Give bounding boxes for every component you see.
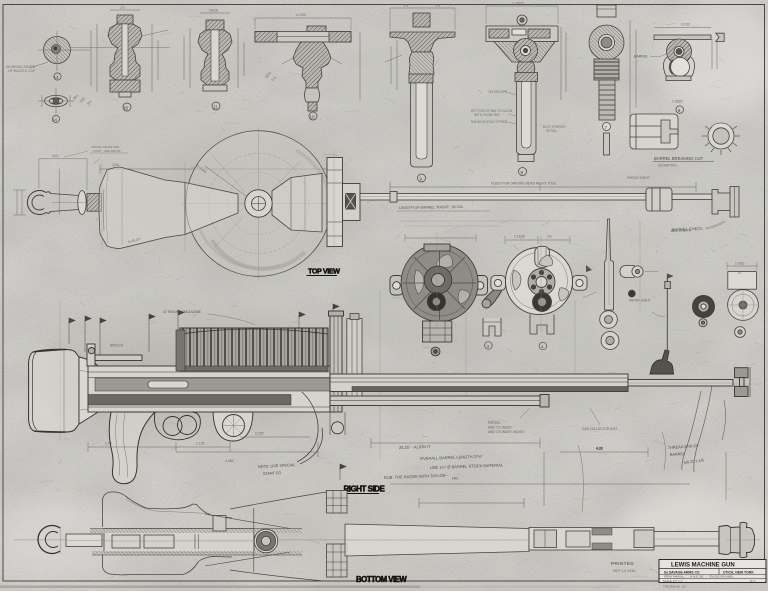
svg-text:1¾: 1¾ (547, 235, 552, 239)
svg-text:11: 11 (213, 105, 218, 110)
svg-text:1 15/32: 1 15/32 (512, 2, 524, 6)
svg-text:BARREL: BARREL (634, 55, 648, 59)
svg-text:14: 14 (52, 118, 58, 123)
svg-text:10: 10 (310, 115, 316, 120)
svg-text:6: 6 (678, 108, 681, 113)
svg-text:ISOMETRIC: ISOMETRIC (658, 164, 677, 168)
svg-text:10⅞: 10⅞ (52, 154, 59, 158)
svg-text:TELESCOPE: TELESCOPE (488, 90, 507, 94)
svg-text:PRINTED: PRINTED (611, 561, 634, 566)
svg-text:BREECH: BREECH (110, 344, 124, 348)
svg-text:HO: HO (452, 476, 458, 481)
svg-text:9: 9 (420, 177, 423, 182)
svg-text:WITH GUIDE RIB: WITH GUIDE RIB (474, 113, 499, 117)
svg-text:1 9/16: 1 9/16 (735, 262, 745, 266)
svg-text:2.225: 2.225 (255, 432, 264, 436)
svg-text:AND CYLINDER VALVES: AND CYLINDER VALVES (488, 430, 525, 434)
svg-text:UTICA, NEW YORK: UTICA, NEW YORK (723, 570, 754, 574)
svg-text:7: 7 (605, 125, 608, 130)
svg-text:8: 8 (521, 170, 524, 175)
svg-text:3.102: 3.102 (681, 23, 690, 27)
svg-text:TOP VIEW: TOP VIEW (308, 267, 340, 276)
svg-text:DETAIL: DETAIL (546, 129, 557, 133)
svg-text:PISTON -: PISTON - (488, 421, 502, 425)
svg-text:RADIO NOZZLE STRIKE: RADIO NOZZLE STRIKE (471, 120, 507, 124)
svg-text:4 1/32: 4 1/32 (296, 13, 306, 17)
svg-text:FROM "MANUAL..." · 14 AUG 362: FROM "MANUAL..." · 14 AUG 362 · / · TRAC… (664, 575, 734, 579)
svg-text:TRACING No. 117: TRACING No. 117 (663, 585, 686, 589)
svg-text:FLEET FOR DRIVING HEAD RIGHT T: FLEET FOR DRIVING HEAD RIGHT TOOL (491, 182, 557, 186)
svg-text:14: 14 (54, 75, 60, 80)
svg-text:RIGHT SIDE: RIGHT SIDE (344, 485, 386, 494)
svg-text:15/16: 15/16 (209, 9, 218, 13)
svg-text:4.062: 4.062 (225, 459, 234, 463)
svg-text:Nº 1: Nº 1 (750, 579, 756, 583)
svg-text:GAS COLLECTOR UNIT: GAS COLLECTOR UNIT (582, 427, 617, 431)
svg-text:by SAVAGE ARMS CO: by SAVAGE ARMS CO (664, 570, 700, 574)
svg-text:1.0625: 1.0625 (672, 100, 682, 104)
svg-text:BOTTOM VIEW: BOTTOM VIEW (356, 575, 407, 584)
svg-text:FRONT SIGHT: FRONT SIGHT (627, 176, 650, 180)
svg-text:SEP 14 1916: SEP 14 1916 (613, 569, 635, 573)
svg-text:12⅜: 12⅜ (112, 163, 119, 167)
svg-text:.62: .62 (737, 271, 742, 275)
svg-text:2 11/16: 2 11/16 (514, 235, 525, 239)
svg-text:16: 16 (123, 106, 129, 111)
svg-text:BARREL BREAKING CUT: BARREL BREAKING CUT (654, 156, 704, 161)
svg-text:47 ROUND MAGAZINE: 47 ROUND MAGAZINE (163, 310, 202, 314)
svg-text:LOOP · SEE DETAIL: LOOP · SEE DETAIL (93, 149, 121, 153)
svg-text:FRONT SIGHT: FRONT SIGHT (629, 299, 651, 303)
svg-text:AND CYLINDER -: AND CYLINDER - (488, 426, 514, 430)
svg-text:1.00: 1.00 (105, 442, 112, 446)
svg-text:4.20: 4.20 (596, 447, 603, 451)
svg-text:LEWIS MACHINE GUN: LEWIS MACHINE GUN (671, 563, 735, 569)
svg-text:1.125: 1.125 (196, 442, 205, 446)
svg-text:OF MUZZLE CAP: OF MUZZLE CAP (8, 69, 36, 73)
svg-text:SCALE: 1½" = 1': SCALE: 1½" = 1' (663, 579, 683, 583)
